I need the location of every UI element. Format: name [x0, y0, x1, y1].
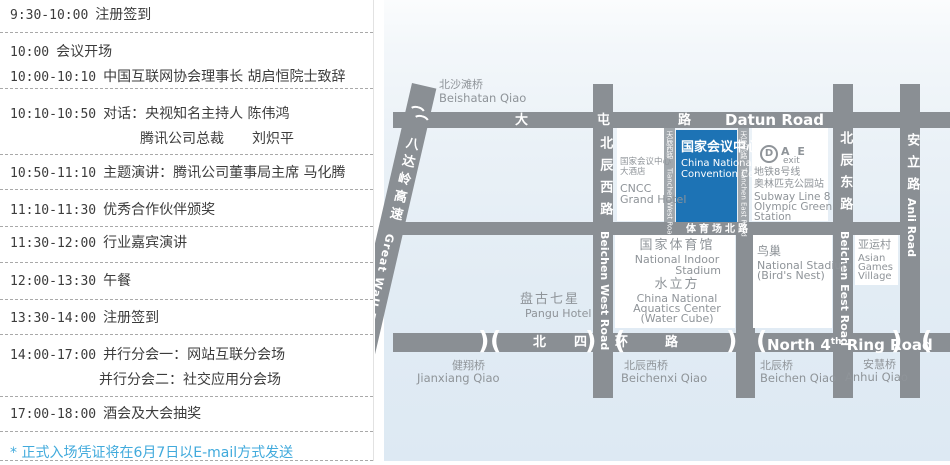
place-subway-exit: exit: [783, 157, 800, 166]
agenda-time: 10:50-11:10: [10, 166, 96, 181]
place-pangu-hotel-zh: 盘古七星: [520, 293, 580, 307]
bridge-mark: (: [490, 328, 501, 353]
road-label-beichen-east-en: Beichen Eest Road: [838, 231, 850, 346]
agenda-text: 午餐: [103, 273, 131, 289]
agenda-time: 9:30-10:00: [10, 8, 88, 23]
agenda-time: 11:30-12:00: [10, 236, 96, 251]
agenda-row: 13:30-14:00注册签到: [0, 300, 373, 335]
agenda-row: 11:10-11:30优秀合作伙伴颁奖: [0, 190, 373, 227]
place-pangu-hotel-en: Pangu Hotel: [525, 308, 591, 320]
place-subway-zh1: 地铁8号线: [754, 168, 800, 179]
tianchen-west-zh: 天辰西路: [666, 131, 674, 159]
place-indoor-stadium-en2: Stadium: [627, 265, 727, 277]
place-water-cube-en3: (Water Cube): [627, 313, 727, 325]
place-asian-games-village-en3: Village: [858, 272, 892, 283]
place-indoor-stadium-zh: 国家体育馆: [627, 239, 727, 253]
place-beichen-qiao-zh: 北辰桥: [760, 360, 793, 372]
agenda-text: 腾讯公司总裁 刘炽平: [140, 131, 294, 147]
place-water-cube-zh: 水立方: [627, 278, 727, 292]
bridge-mark: (: [756, 328, 767, 353]
road-datun: [393, 112, 950, 128]
place-birds-nest-en2: (Bird's Nest): [757, 270, 825, 282]
road-label-beichen-west-en: Beichen West Road: [598, 231, 610, 350]
place-subway-zh2: 奥林匹克公园站: [754, 180, 824, 191]
agenda-row: 12:00-13:30午餐: [0, 263, 373, 300]
place-convention-center-en1: China National: [681, 158, 754, 169]
agenda-text: 优秀合作伙伴颁奖: [103, 202, 215, 218]
road-label-datun-en: Datun Road: [725, 112, 824, 128]
place-beichenxi-qiao-en: Beichenxi Qiao: [621, 372, 707, 384]
road-label-ring-zh1: 北: [533, 335, 546, 351]
bridge-mark: ): [891, 328, 902, 353]
agenda-time: 17:00-18:00: [10, 407, 96, 422]
road-label-ring-zh4: 路: [665, 335, 678, 351]
place-convention-center-zh: 国家会议中心: [681, 141, 759, 155]
agenda-time: 10:10-10:50: [10, 107, 96, 122]
place-asian-games-village-zh: 亚运村: [858, 239, 891, 251]
place-anhui-qiao-en: Anhui Qiao: [845, 371, 908, 383]
place-subway-en3: Station: [754, 212, 791, 223]
place-jianxiang-qiao-zh: 健翔桥: [452, 360, 485, 372]
agenda-text: 对话：央视知名主持人 陈伟鸿: [103, 106, 289, 122]
agenda-text: 注册签到: [95, 7, 151, 23]
place-cncc-hotel-zh1: 国家会议中心: [620, 158, 671, 167]
agenda-time: 14:00-17:00: [10, 348, 96, 363]
location-map: 八达岭高速 Great Wall Expressway 大 屯 路 Datun …: [375, 0, 950, 461]
agenda-time: 13:30-14:00: [10, 311, 96, 326]
agenda-text: 中国互联网协会理事长 胡启恒院士致辞: [103, 69, 345, 85]
place-beichenxi-qiao-zh: 北辰西桥: [624, 360, 668, 372]
agenda-text: 并行分会二：社交应用分会场: [99, 372, 281, 388]
agenda-time: 10:00: [10, 45, 49, 60]
place-anhui-qiao-zh: 安慧桥: [863, 359, 896, 371]
agenda-row: 14:00-17:00并行分会一：网站互联分会场 并行分会二：社交应用分会场: [0, 335, 373, 397]
road-label-datun-zh3: 路: [678, 113, 691, 129]
agenda-text: 注册签到: [103, 310, 159, 326]
bridge-mark: (: [614, 328, 625, 353]
agenda-text: 主题演讲：腾讯公司董事局主席 马化腾: [103, 165, 345, 181]
ring-en-suffix: Ring Road: [841, 336, 932, 354]
road-label-tianchen-west: 天辰西路Tianchen West Road: [665, 131, 673, 239]
agenda-row: 10:50-11:10主题演讲：腾讯公司董事局主席 马化腾: [0, 155, 373, 190]
agenda-text: 会议开场: [56, 44, 112, 60]
bridge-mark: ): [478, 328, 489, 353]
place-beichen-qiao-en: Beichen Qiao: [760, 372, 836, 384]
road-label-datun-zh1: 大: [515, 113, 528, 129]
agenda-time: 11:10-11:30: [10, 203, 96, 218]
agenda-text: 行业嘉宾演讲: [103, 235, 187, 251]
place-beishatan-qiao-zh: 北沙滩桥: [439, 79, 483, 91]
agenda-row: 11:30-12:00行业嘉宾演讲: [0, 227, 373, 263]
road-label-beichen-west-zh: 北辰西路: [597, 136, 611, 224]
footnote-note: * 正式入场凭证将在6月7日以E-mail方式发送: [0, 432, 373, 461]
agenda-text: 并行分会一：网站互联分会场: [103, 347, 285, 363]
place-birds-nest-zh: 鸟巢: [757, 245, 781, 258]
bridge-mark: (: [921, 328, 932, 353]
agenda-text: 酒会及大会抽奖: [103, 406, 201, 422]
agenda-row: 10:00会议开场 10:00-10:10中国互联网协会理事长 胡启恒院士致辞: [0, 33, 373, 89]
bridge-mark: ): [585, 328, 596, 353]
agenda-row: 9:30-10:00注册签到: [0, 0, 373, 33]
agenda-time: 10:00-10:10: [10, 70, 96, 85]
agenda-time: 12:00-13:30: [10, 274, 96, 289]
bridge-mark: ): [726, 328, 737, 353]
agenda-row: 17:00-18:00酒会及大会抽奖: [0, 397, 373, 432]
place-beishatan-qiao-en: Beishatan Qiao: [439, 92, 526, 104]
road-label-beichen-east-zh: 北辰东路: [837, 131, 851, 219]
agenda-row: 10:10-10:50对话：央视知名主持人 陈伟鸿 腾讯公司总裁 刘炽平: [0, 89, 373, 155]
agenda-panel: 9:30-10:00注册签到 10:00会议开场 10:00-10:10中国互联…: [0, 0, 374, 461]
place-jianxiang-qiao-en: Jianxiang Qiao: [417, 372, 500, 384]
road-label-anli-en: Anli Road: [905, 198, 917, 257]
ring-en-prefix: North 4: [767, 336, 831, 354]
subway-logo-icon: D: [760, 145, 778, 163]
road-label-anli-zh: 安立路: [904, 133, 918, 199]
road-label-datun-zh2: 屯: [597, 113, 610, 129]
place-cncc-hotel-en2: Grand Hotel: [620, 194, 686, 206]
place-cncc-hotel-zh2: 大酒店: [620, 168, 646, 177]
